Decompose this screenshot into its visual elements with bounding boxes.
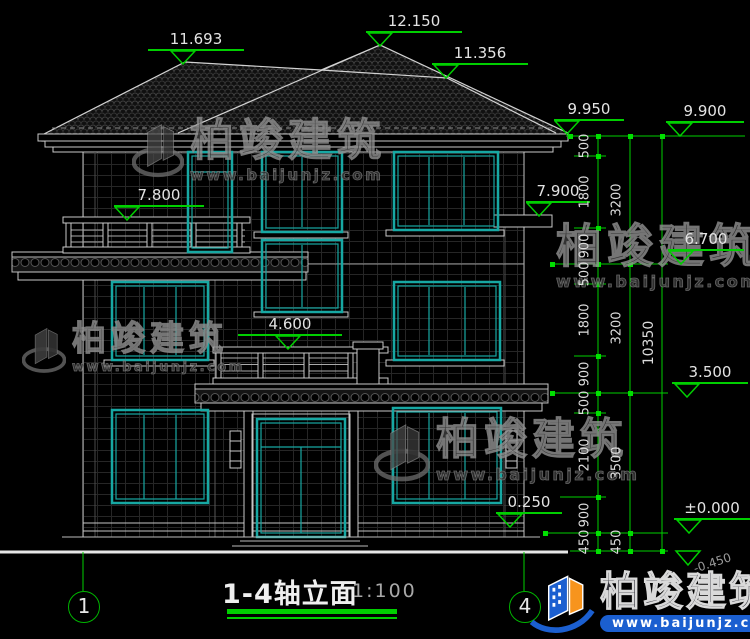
dim-label: 1800 — [578, 303, 593, 336]
elevation-triangle-icon — [676, 519, 702, 534]
elevation-value: 0.250 — [496, 493, 562, 511]
elevation-triangle-icon — [275, 335, 301, 350]
elevation-marker: 9.950 — [554, 100, 624, 121]
dim-label: 1800 — [578, 175, 593, 208]
elevation-triangle-icon — [526, 202, 552, 217]
elevation-value: 6.700 — [668, 230, 744, 248]
elevation-value: 4.600 — [238, 315, 342, 333]
elevation-marker: 4.600 — [238, 315, 342, 336]
elevation-marker: ±0.000 — [674, 499, 750, 520]
dim-label: 3500 — [610, 446, 625, 479]
title-underline-thin — [227, 617, 397, 619]
dim-label: 450 — [578, 530, 593, 555]
cad-elevation-screenshot: 11.693 12.150 11.356 9.950 9.900 7.800 7… — [0, 0, 750, 639]
drawing-title: 1-4轴立面 — [222, 572, 358, 611]
elevation-marker: 9.900 — [666, 102, 744, 123]
elevation-triangle-icon — [170, 50, 196, 65]
elevation-triangle-icon — [367, 32, 393, 47]
elevation-marker: 12.150 — [366, 12, 462, 33]
footer-url: www.baijunjz.com — [600, 615, 750, 632]
elevation-drawing-svg — [0, 0, 750, 639]
elevation-triangle-icon — [674, 383, 700, 398]
walls — [83, 152, 524, 537]
elevation-triangle-icon — [667, 122, 693, 137]
elevation-marker: 6.700 — [668, 230, 744, 251]
elevation-triangle-icon — [433, 64, 459, 79]
elevation-value: 11.693 — [148, 30, 244, 48]
dim-label: 900 — [578, 362, 593, 387]
footer-brand: 柏竣建筑 — [600, 572, 750, 612]
elevation-value: 9.950 — [554, 100, 624, 118]
footer-logo: 柏竣建筑 www.baijunjz.com — [526, 570, 750, 634]
elevation-marker: 0.250 — [496, 493, 562, 514]
elevation-triangle-icon — [114, 206, 140, 221]
elevation-marker: 11.356 — [432, 44, 528, 65]
elevation-marker: 11.693 — [148, 30, 244, 51]
dim-label: 500 — [578, 134, 593, 159]
elevation-value: 9.900 — [666, 102, 744, 120]
elevation-triangle-icon — [554, 120, 580, 135]
dim-label: 3200 — [610, 183, 625, 216]
elevation-value: 11.356 — [432, 44, 528, 62]
elevation-value: 7.800 — [114, 186, 204, 204]
title-underline — [227, 609, 397, 614]
dim-label: 10350 — [641, 321, 657, 366]
dim-label: 450 — [610, 530, 625, 555]
elevation-line — [148, 49, 244, 51]
dim-label: 500 — [578, 391, 593, 416]
elevation-triangle-icon — [497, 513, 523, 528]
elevation-marker: 3.500 — [672, 363, 748, 384]
elevation-value: 12.150 — [366, 12, 462, 30]
dim-label: 900 — [578, 234, 593, 259]
elevation-marker: 7.800 — [114, 186, 204, 207]
footer-logo-icon — [526, 570, 596, 634]
dim-label: 500 — [578, 262, 593, 287]
elevation-value: ±0.000 — [674, 499, 750, 517]
eave-cornice — [38, 134, 568, 152]
dim-label: 3200 — [610, 311, 625, 344]
dim-label: 2100 — [578, 438, 593, 471]
drawing-scale: 1:100 — [352, 580, 417, 602]
dim-label: 900 — [578, 503, 593, 528]
left-subroof — [12, 252, 308, 280]
axis-bubble-1: 1 — [68, 591, 100, 623]
elevation-value: 3.500 — [672, 363, 748, 381]
ground-lines — [0, 537, 568, 552]
elevation-triangle-icon — [668, 250, 694, 265]
